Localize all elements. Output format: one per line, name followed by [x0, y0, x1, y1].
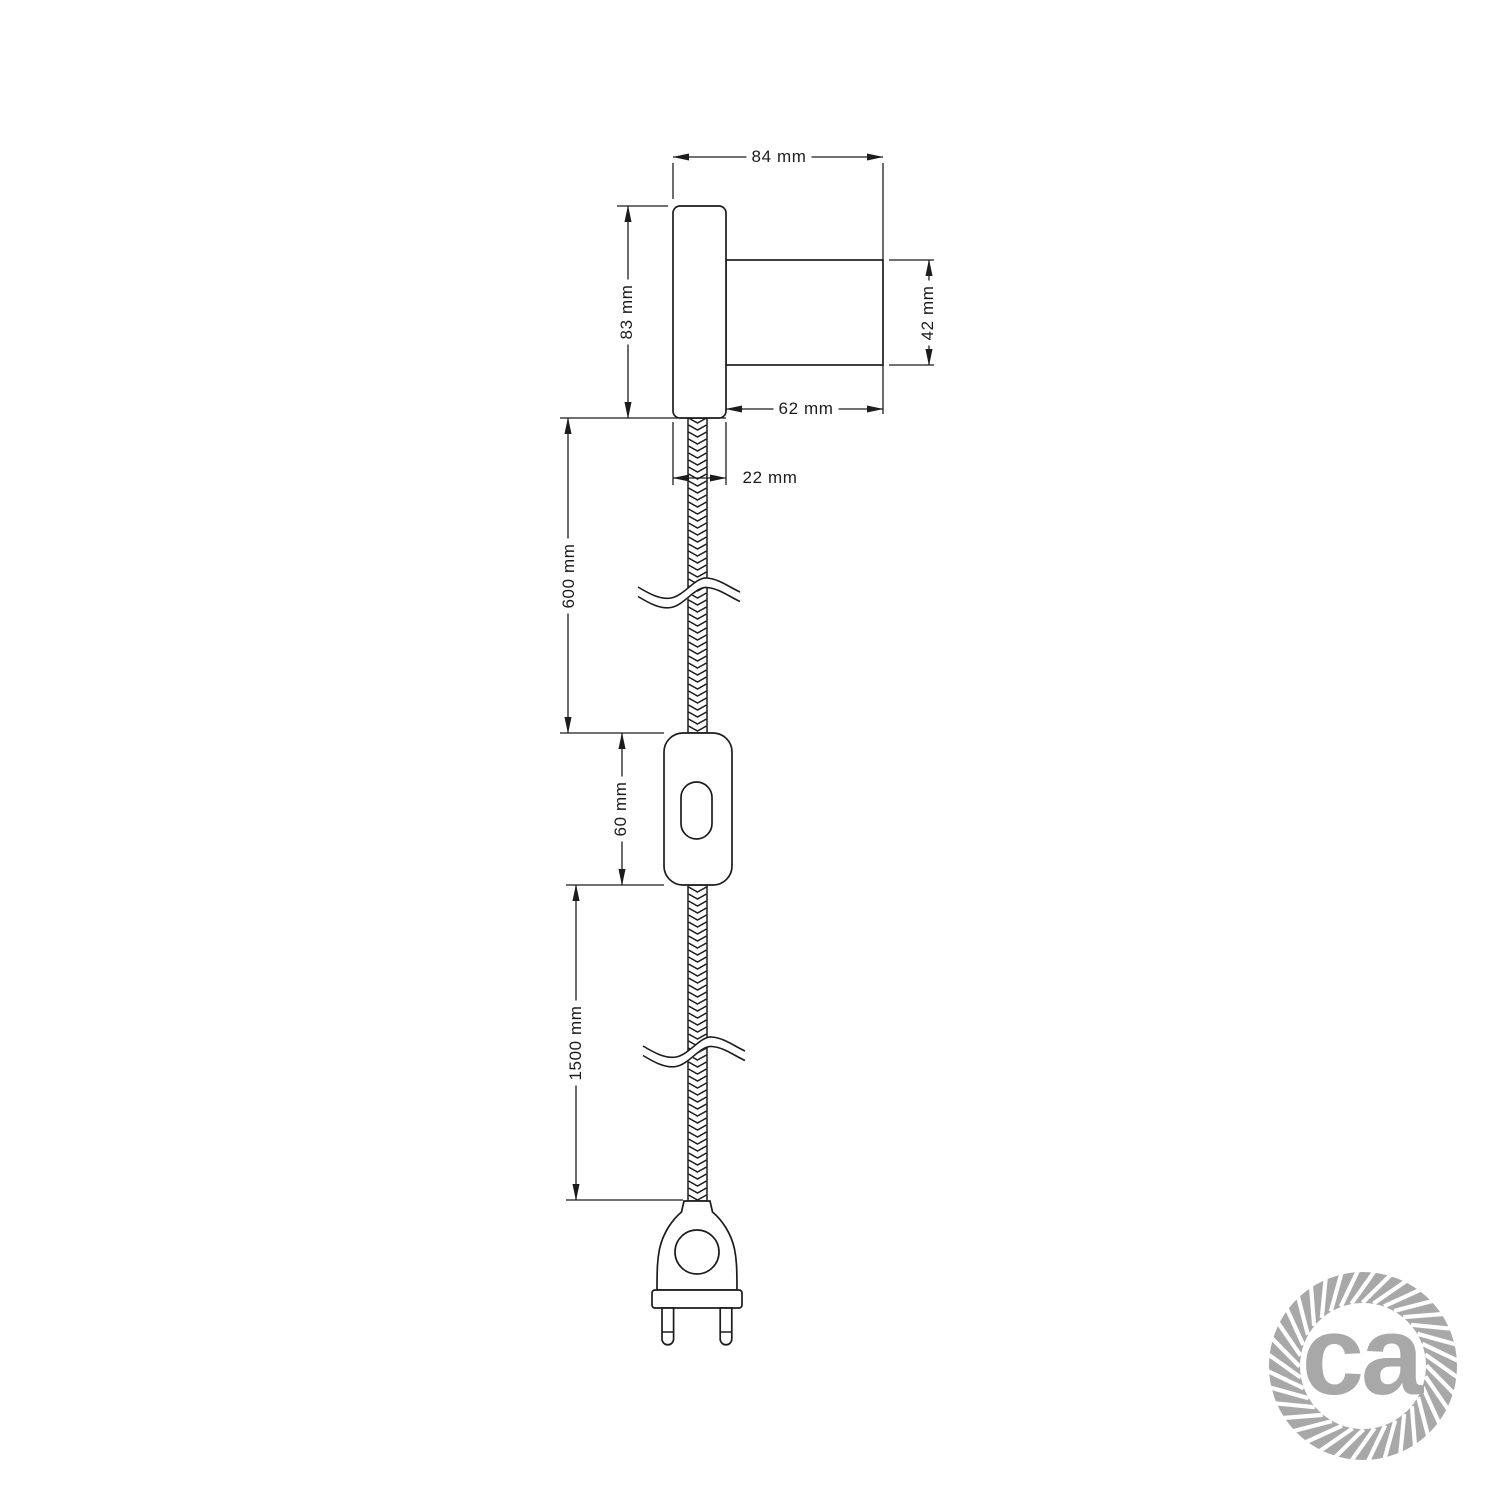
inline-switch: [664, 733, 732, 885]
technical-drawing: ca 84 mm 83 mm 42 mm 62 mm 22 mm 600 mm …: [0, 0, 1500, 1500]
brand-logo: ca: [1268, 1271, 1459, 1462]
dimension-label-socket-length: 62 mm: [774, 398, 839, 420]
plug-flange: [652, 1290, 742, 1308]
dimension-label-total-width: 84 mm: [747, 146, 812, 168]
plug-pin-right: [720, 1308, 732, 1345]
lamp-dimension-diagram: ca: [0, 0, 1500, 1500]
dimension-label-upper-cable-length: 600 mm: [558, 538, 580, 613]
upper-cable-segment: [688, 418, 707, 733]
dimension-label-plate-height: 83 mm: [616, 280, 638, 345]
switch-button: [681, 782, 712, 839]
euro-plug: [652, 1201, 742, 1345]
wall-plate: [673, 206, 726, 418]
plug-pin-left: [662, 1308, 674, 1345]
dimension-label-lower-cable-length: 1500 mm: [565, 1000, 587, 1085]
dimension-label-plate-depth: 22 mm: [738, 467, 803, 489]
plug-hole: [675, 1230, 719, 1274]
dimension-label-socket-diameter: 42 mm: [917, 281, 939, 346]
lamp-socket: [726, 260, 883, 365]
logo-text: ca: [1302, 1293, 1424, 1418]
dimension-label-switch-length: 60 mm: [610, 777, 632, 842]
